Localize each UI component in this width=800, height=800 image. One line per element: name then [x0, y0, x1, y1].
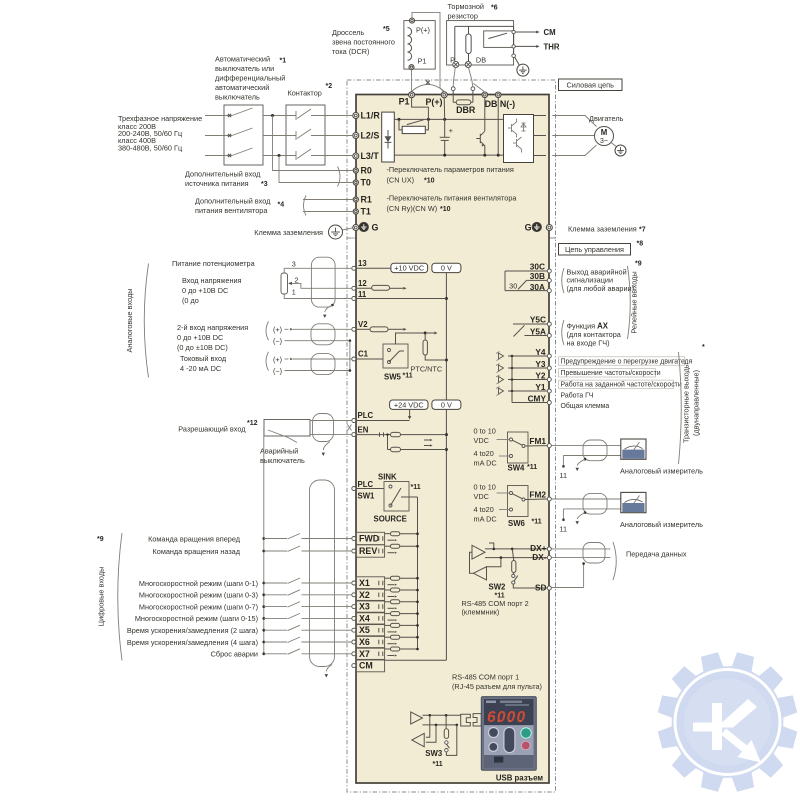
svg-text:*12: *12 [247, 420, 258, 427]
svg-text:SW6: SW6 [508, 519, 526, 528]
svg-text:X2: X2 [359, 590, 370, 600]
svg-text:L3/T: L3/T [361, 151, 380, 161]
svg-text:FWD: FWD [359, 534, 380, 544]
svg-text:(CN Ry)(CN W): (CN Ry)(CN W) [387, 204, 438, 213]
svg-text:PLC: PLC [358, 480, 374, 489]
svg-text:4 -20 мА DC: 4 -20 мА DC [180, 364, 221, 373]
svg-text:P1: P1 [418, 57, 427, 66]
svg-text:Работа на заданной частоте/ско: Работа на заданной частоте/скорости [561, 381, 682, 389]
svg-text:*11: *11 [411, 484, 421, 491]
svg-text:EN: EN [358, 426, 369, 435]
svg-text:DB: DB [476, 56, 486, 65]
svg-text:SD: SD [535, 582, 547, 592]
svg-text:Силовая цепь: Силовая цепь [566, 81, 614, 90]
svg-text:Предупреждение о перегрузке дв: Предупреждение о перегрузке двигателя [561, 358, 693, 365]
svg-text:3~: 3~ [600, 136, 608, 145]
svg-text:Команда вращения вперед: Команда вращения вперед [148, 534, 241, 543]
svg-text:выключатель: выключатель [215, 93, 260, 102]
svg-text:30A: 30A [530, 282, 545, 292]
svg-text:Токовый вход: Токовый вход [180, 354, 227, 363]
svg-text:PTC/NTC: PTC/NTC [411, 365, 443, 374]
svg-text:Аналоговый измеритель: Аналоговый измеритель [620, 467, 703, 476]
svg-text:X5: X5 [359, 625, 370, 635]
svg-text:*5: *5 [383, 26, 390, 33]
svg-text:30: 30 [509, 281, 517, 290]
svg-text:Дополнительный вход: Дополнительный вход [195, 197, 271, 206]
svg-text:*10: *10 [424, 178, 435, 185]
svg-text:R1: R1 [361, 195, 372, 205]
svg-text:T1: T1 [361, 207, 371, 217]
svg-text:Время ускорения/замедления (2: Время ускорения/замедления (2 шага) [127, 626, 258, 635]
svg-text:Аварийный: Аварийный [260, 447, 298, 456]
svg-text:Двигатель: Двигатель [589, 114, 624, 123]
svg-text:(для любой аварии): (для любой аварии) [567, 284, 635, 293]
svg-text:(−): (−) [273, 337, 282, 346]
svg-text:0 до +10В DC: 0 до +10В DC [182, 286, 228, 295]
svg-text:*4: *4 [278, 202, 285, 209]
svg-text:+24 VDC: +24 VDC [394, 400, 424, 409]
svg-text:CM: CM [544, 28, 556, 37]
svg-text:источника питания: источника питания [185, 179, 249, 188]
svg-text:Команда вращения назад: Команда вращения назад [153, 547, 241, 556]
svg-text:11: 11 [358, 290, 367, 299]
svg-text:*10: *10 [440, 206, 451, 213]
svg-text:X1: X1 [359, 578, 370, 588]
svg-text:Y2: Y2 [535, 370, 546, 380]
svg-text:питания вентилятора: питания вентилятора [195, 206, 268, 215]
svg-text:выключатель: выключатель [260, 456, 305, 465]
svg-text:4 to20: 4 to20 [474, 449, 494, 458]
svg-text:13: 13 [358, 259, 367, 268]
svg-text:Цифровые входы: Цифровые входы [97, 567, 106, 627]
svg-text:Y5A: Y5A [530, 326, 546, 336]
svg-text:0 to 10: 0 to 10 [474, 483, 496, 492]
svg-text:-Переключатель параметров пита: -Переключатель параметров питания [387, 165, 514, 174]
svg-text:+: + [449, 126, 453, 135]
svg-text:X6: X6 [359, 637, 370, 647]
svg-text:Клемма заземления: Клемма заземления [568, 225, 637, 234]
svg-text:G: G [525, 223, 532, 233]
svg-text:Вход напряжения: Вход напряжения [182, 276, 242, 285]
svg-text:*11: *11 [433, 761, 443, 768]
svg-text:VDC: VDC [474, 436, 489, 445]
svg-text:FM1: FM1 [529, 436, 546, 446]
svg-text:(CN UX): (CN UX) [387, 176, 415, 185]
svg-text:Аналоговый измеритель: Аналоговый измеритель [620, 520, 703, 529]
svg-text:0 V: 0 V [441, 400, 452, 409]
svg-text:*9: *9 [635, 261, 642, 268]
svg-text:Общая клемма: Общая клемма [561, 402, 610, 410]
svg-text:Разрешающий вход: Разрешающий вход [178, 425, 246, 434]
svg-text:mA DC: mA DC [474, 514, 497, 523]
svg-text:380-480В, 50/60 Гц: 380-480В, 50/60 Гц [118, 144, 183, 153]
svg-text:Транзисторные выходы: Транзисторные выходы [682, 363, 691, 443]
svg-text:резистор: резистор [448, 11, 478, 20]
svg-text:1: 1 [292, 288, 296, 297]
svg-text:X7: X7 [359, 649, 370, 659]
svg-text:THR: THR [544, 43, 560, 52]
svg-text:*11: *11 [527, 464, 537, 471]
svg-text:Работа ГЧ: Работа ГЧ [561, 391, 594, 399]
svg-text:Сброс аварии: Сброс аварии [211, 650, 258, 659]
svg-text:(+): (+) [273, 325, 282, 334]
svg-text:Тормозной: Тормозной [448, 2, 485, 11]
svg-text:*2: *2 [326, 83, 333, 90]
svg-text:Цепь управления: Цепь управления [565, 245, 624, 254]
svg-text:X4: X4 [359, 613, 370, 623]
svg-text:-Переключатель питания вентиля: -Переключатель питания вентилятора [387, 194, 518, 203]
svg-text:Многоскоростной режим (шаги 0-: Многоскоростной режим (шаги 0-1) [139, 579, 258, 588]
svg-text:4 to20: 4 to20 [474, 505, 494, 514]
svg-text:V2: V2 [358, 320, 368, 329]
svg-text:(двунаправленные): (двунаправленные) [692, 370, 701, 436]
svg-text:SOURCE: SOURCE [374, 514, 407, 523]
svg-text:(+): (+) [273, 355, 282, 364]
svg-text:L1/R: L1/R [361, 111, 381, 121]
svg-text:*1: *1 [280, 58, 287, 65]
svg-text:(0 до ±10В DC): (0 до ±10В DC) [177, 343, 228, 352]
svg-text:Y3: Y3 [535, 359, 546, 369]
svg-text:Многоскоростной режим (шаги 0-: Многоскоростной режим (шаги 0-15) [135, 614, 258, 623]
svg-text:DX-: DX- [532, 552, 547, 562]
svg-text:0 to 10: 0 to 10 [474, 427, 496, 436]
svg-text:SW5: SW5 [384, 373, 402, 382]
svg-text:SW2: SW2 [489, 583, 507, 592]
svg-text:USB разъем: USB разъем [496, 774, 543, 783]
svg-text:Питание потенциометра: Питание потенциометра [172, 259, 256, 268]
svg-text:6000: 6000 [487, 709, 526, 726]
svg-text:N(-): N(-) [500, 99, 515, 109]
svg-text:Клемма заземления: Клемма заземления [254, 228, 323, 237]
svg-text:+10 VDC: +10 VDC [394, 263, 424, 272]
svg-text:Дополнительный вход: Дополнительный вход [185, 170, 261, 179]
svg-text:L2/S: L2/S [361, 131, 380, 141]
svg-text:*11: *11 [403, 373, 413, 380]
svg-text:2-й вход напряжения: 2-й вход напряжения [177, 323, 248, 332]
svg-text:Y4: Y4 [535, 347, 546, 357]
svg-text:DB: DB [485, 99, 498, 109]
svg-text:Релейные выходы: Релейные выходы [630, 271, 639, 333]
svg-text:Многоскоростной режим (шаги 0-: Многоскоростной режим (шаги 0-7) [139, 602, 258, 611]
svg-text:Превышение частоты/скорости: Превышение частоты/скорости [561, 370, 661, 377]
svg-text:T0: T0 [361, 178, 371, 188]
svg-text:Передача данных: Передача данных [626, 550, 687, 559]
svg-text:Дроссель: Дроссель [332, 28, 364, 37]
svg-text:X3: X3 [359, 602, 370, 612]
svg-text:11: 11 [560, 471, 568, 480]
svg-text:тока (DCR): тока (DCR) [332, 47, 369, 56]
svg-text:12: 12 [358, 279, 367, 288]
svg-text:*6: *6 [491, 5, 498, 12]
svg-text:30B: 30B [530, 271, 545, 281]
svg-text:SW4: SW4 [508, 464, 526, 473]
svg-text:C1: C1 [358, 350, 369, 359]
svg-text:Аналоговые входы: Аналоговые входы [125, 289, 134, 353]
svg-text:(0 до: (0 до [182, 296, 199, 305]
svg-text:REV: REV [359, 546, 377, 556]
svg-text:Контактор: Контактор [288, 89, 322, 98]
svg-text:SINK: SINK [378, 472, 397, 481]
svg-text:CM: CM [359, 661, 373, 671]
svg-text:*8: *8 [637, 241, 644, 248]
svg-text:(клеммник): (клеммник) [462, 608, 500, 617]
svg-text:30C: 30C [530, 262, 545, 272]
svg-text:R0: R0 [361, 166, 372, 176]
svg-text:0 до +10В DC: 0 до +10В DC [177, 333, 223, 342]
svg-text:0 V: 0 V [441, 263, 452, 272]
svg-text:P1: P1 [399, 96, 410, 106]
svg-text:P(+): P(+) [416, 26, 430, 35]
svg-text:P(+): P(+) [425, 97, 442, 107]
svg-text:Время ускорения/замедления (4: Время ускорения/замедления (4 шага) [127, 638, 258, 647]
svg-text:(−): (−) [273, 367, 282, 376]
svg-text:автоматический: автоматический [215, 83, 269, 92]
svg-text:(RJ-45 разъем для пульта): (RJ-45 разъем для пульта) [452, 682, 542, 691]
svg-text:Y1: Y1 [535, 382, 546, 392]
svg-text:mA DC: mA DC [474, 458, 497, 467]
svg-text:RS-485 COM порт 1: RS-485 COM порт 1 [452, 673, 519, 682]
svg-text:Автоматический: Автоматический [215, 55, 270, 64]
svg-text:SW3: SW3 [425, 749, 443, 758]
svg-text:*11: *11 [532, 519, 542, 526]
svg-text:*9: *9 [97, 536, 104, 543]
svg-text:PLC: PLC [358, 411, 374, 420]
svg-text:выключатель или: выключатель или [215, 64, 274, 73]
svg-text:дифференциальный: дифференциальный [215, 74, 285, 83]
svg-text:CMY: CMY [528, 393, 547, 403]
svg-text:*7: *7 [639, 227, 646, 234]
svg-text:G: G [372, 223, 379, 233]
svg-text:*3: *3 [261, 181, 268, 188]
svg-text:Многоскоростной режим (шаги 0-: Многоскоростной режим (шаги 0-3) [139, 591, 258, 600]
svg-text:на входе ГЧ): на входе ГЧ) [567, 339, 610, 348]
svg-text:DBR: DBR [456, 105, 476, 115]
svg-text:Y5C: Y5C [530, 315, 546, 325]
svg-text:*: * [702, 344, 705, 351]
svg-text:11: 11 [560, 525, 568, 534]
svg-text:SW1: SW1 [358, 492, 376, 501]
svg-text:FM2: FM2 [529, 490, 546, 500]
svg-text:3: 3 [292, 260, 296, 269]
svg-text:VDC: VDC [474, 492, 489, 501]
svg-text:звена постоянного: звена постоянного [332, 38, 395, 47]
